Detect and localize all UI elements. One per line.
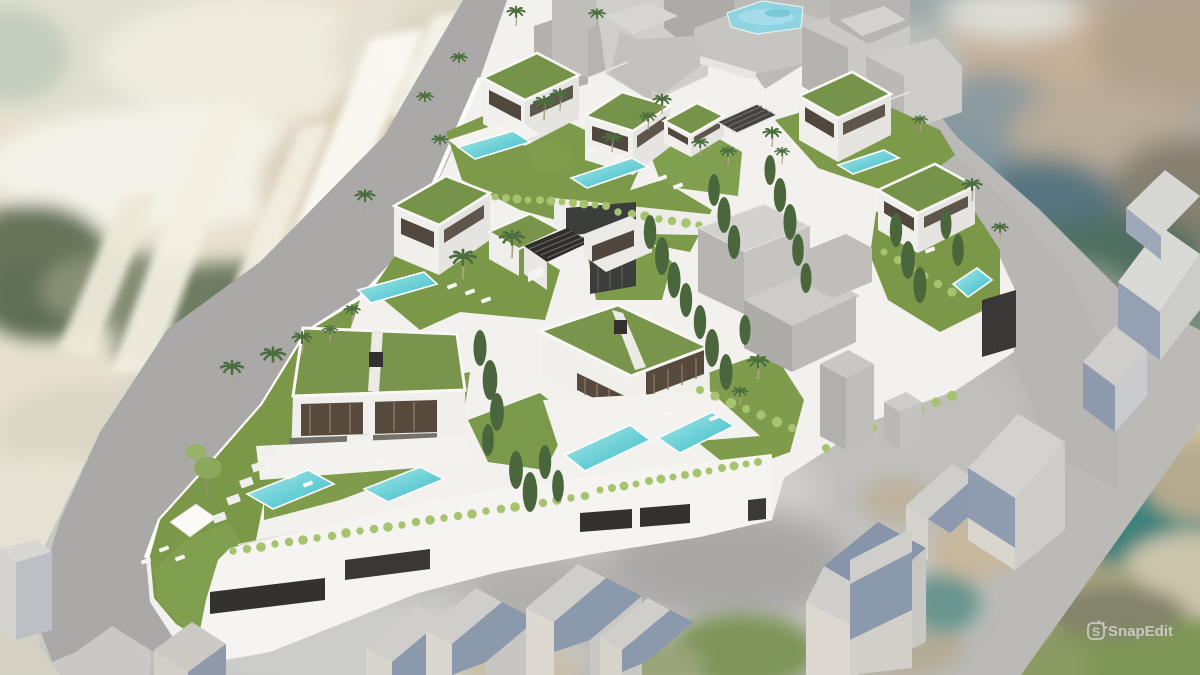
svg-text:S: S	[1092, 625, 1100, 639]
svg-text:SnapEdit: SnapEdit	[1108, 623, 1173, 640]
